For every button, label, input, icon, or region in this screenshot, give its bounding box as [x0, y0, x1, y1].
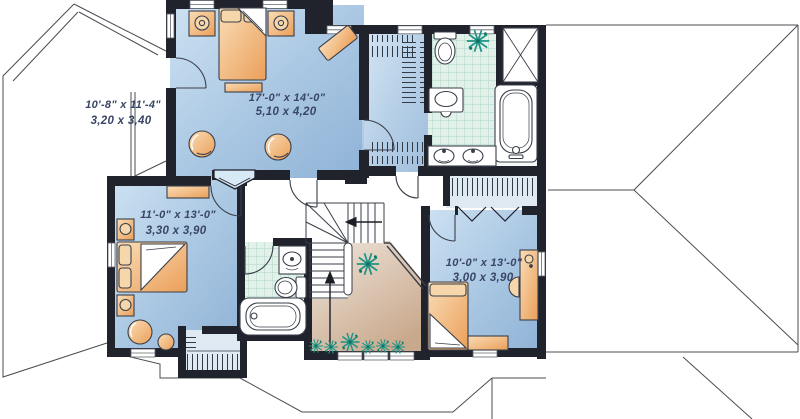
- bedroom2-closet-hatch: [187, 352, 240, 372]
- attic-storage-label: 10'-8" x 11'-4" 3,20 x 3,40: [85, 99, 161, 127]
- door-bathroom: [396, 176, 418, 198]
- pillow: [119, 245, 131, 265]
- dresser: [468, 336, 508, 350]
- ottoman: [158, 334, 174, 350]
- bifold-closet-hatch: [452, 178, 534, 198]
- walkin-hatch-bottom: [369, 142, 423, 164]
- nightstand-right: [268, 11, 294, 36]
- window: [190, 1, 214, 9]
- master-dim-metric: 5,10 x 4,20: [256, 106, 317, 118]
- bedroom3-dim-metric: 3,00 x 3,90: [453, 272, 514, 284]
- bathtub: [495, 85, 537, 162]
- attic-dim-metric: 3,20 x 3,40: [91, 115, 152, 127]
- roof-right: [546, 25, 798, 419]
- window: [108, 243, 115, 267]
- linen-closet: [503, 28, 538, 82]
- window: [364, 352, 388, 360]
- window: [131, 349, 155, 357]
- bedroom3-dim-imperial: 10'-0" x 13'-0": [446, 257, 523, 269]
- armchair: [189, 131, 215, 157]
- pillow: [221, 10, 241, 22]
- floor-plan-page: 10'-8" x 11'-4" 3,20 x 3,40 17'-0" x 14'…: [0, 0, 800, 419]
- walkin-hatch-right: [402, 42, 424, 104]
- armchair: [265, 134, 291, 160]
- toilet: [434, 32, 456, 64]
- window: [263, 1, 287, 9]
- toilet: [275, 277, 306, 298]
- stair-rail-end: [344, 243, 352, 295]
- sink: [279, 246, 306, 274]
- window: [470, 26, 494, 34]
- window: [398, 26, 422, 34]
- nightstand-left: [189, 11, 215, 36]
- roof-bottom-left: [110, 352, 546, 419]
- window: [167, 14, 174, 38]
- double-vanity: [428, 146, 496, 166]
- bathtub: [240, 298, 306, 335]
- master-dim-imperial: 17'-0" x 14'-0": [249, 92, 326, 104]
- pillow: [430, 284, 466, 296]
- armchair: [128, 320, 152, 344]
- floor-plan-drawing: 10'-8" x 11'-4" 3,20 x 3,40 17'-0" x 14'…: [0, 0, 800, 419]
- stairs-upper-floor: [306, 203, 384, 243]
- window: [538, 252, 545, 276]
- desk: [520, 250, 538, 320]
- pillow: [119, 268, 131, 288]
- dresser: [167, 186, 209, 198]
- window: [338, 352, 362, 360]
- bedroom2-closet-hatch-2: [186, 334, 200, 350]
- window: [390, 352, 414, 360]
- bedroom2-dim-metric: 3,30 x 3,90: [146, 225, 207, 237]
- attic-dim-imperial: 10'-8" x 11'-4": [85, 99, 161, 111]
- bedroom2-dim-imperial: 11'-0" x 13'-0": [140, 209, 216, 221]
- bed-bench: [225, 83, 262, 92]
- nightstand: [117, 219, 134, 240]
- nightstand: [117, 295, 134, 316]
